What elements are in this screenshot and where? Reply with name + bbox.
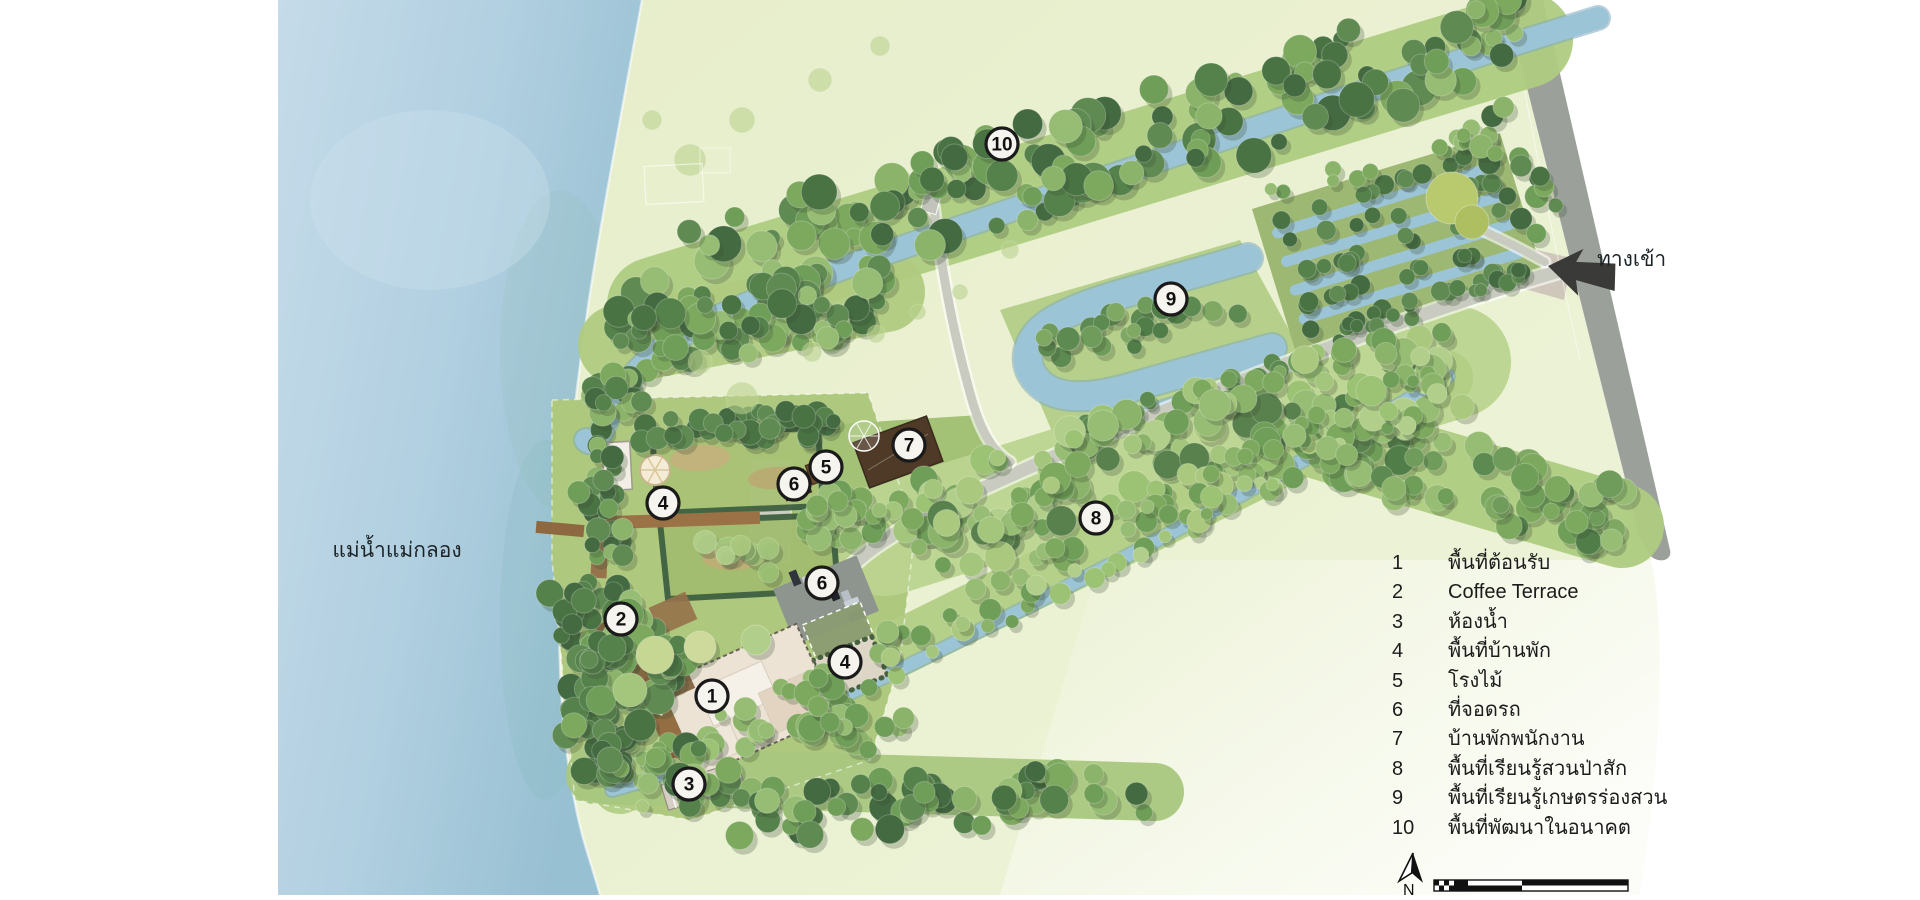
legend: 1พื้นที่ต้อนรับ 2Coffee Terrace 3ห้องน้ำ… <box>1392 549 1667 843</box>
map-marker-10: 10 <box>986 128 1018 160</box>
legend-item: 7บ้านพักพนักงาน <box>1392 725 1667 754</box>
map-marker-5: 5 <box>810 451 842 483</box>
svg-text:6: 6 <box>789 475 800 496</box>
legend-item: 9พื้นที่เรียนรู้เกษตรร่องสวน <box>1392 784 1667 813</box>
map-marker-3: 3 <box>673 768 705 800</box>
svg-text:2: 2 <box>616 610 627 631</box>
legend-item: 4พื้นที่บ้านพัก <box>1392 637 1667 666</box>
scale-bar <box>1434 880 1628 891</box>
legend-item: 6ที่จอดรถ <box>1392 696 1667 725</box>
legend-item: 5โรงไม้ <box>1392 667 1667 696</box>
legend-item: 3ห้องน้ำ <box>1392 608 1667 637</box>
map-marker-2: 2 <box>605 603 637 635</box>
north-label: N <box>1403 882 1415 899</box>
svg-text:4: 4 <box>840 653 851 674</box>
map-marker-8: 8 <box>1080 502 1112 534</box>
map-marker-1: 1 <box>696 680 728 712</box>
map-marker-6: 6 <box>806 567 838 599</box>
svg-text:1: 1 <box>707 687 718 708</box>
svg-text:10: 10 <box>991 135 1012 156</box>
site-plan-stage: 1097564862413 แม่น้ำแม่กลอง ทางเข้า N <box>0 0 1920 900</box>
legend-item: 10พื้นที่พัฒนาในอนาคต <box>1392 814 1667 843</box>
map-marker-6: 6 <box>778 468 810 500</box>
legend-item: 8พื้นที่เรียนรู้สวนป่าสัก <box>1392 755 1667 784</box>
svg-text:5: 5 <box>821 458 832 479</box>
svg-text:3: 3 <box>684 775 695 796</box>
legend-item: 1พื้นที่ต้อนรับ <box>1392 549 1667 578</box>
map-marker-4: 4 <box>647 487 679 519</box>
svg-text:4: 4 <box>658 494 669 515</box>
svg-text:6: 6 <box>817 574 828 595</box>
svg-text:8: 8 <box>1091 509 1102 530</box>
svg-text:7: 7 <box>904 436 915 457</box>
entrance-label: ทางเข้า <box>1597 248 1666 271</box>
river-label: แม่น้ำแม่กลอง <box>332 535 461 562</box>
map-marker-4: 4 <box>829 646 861 678</box>
svg-text:9: 9 <box>1166 290 1177 311</box>
map-marker-9: 9 <box>1155 283 1187 315</box>
map-marker-7: 7 <box>893 429 925 461</box>
legend-item: 2Coffee Terrace <box>1392 578 1667 607</box>
